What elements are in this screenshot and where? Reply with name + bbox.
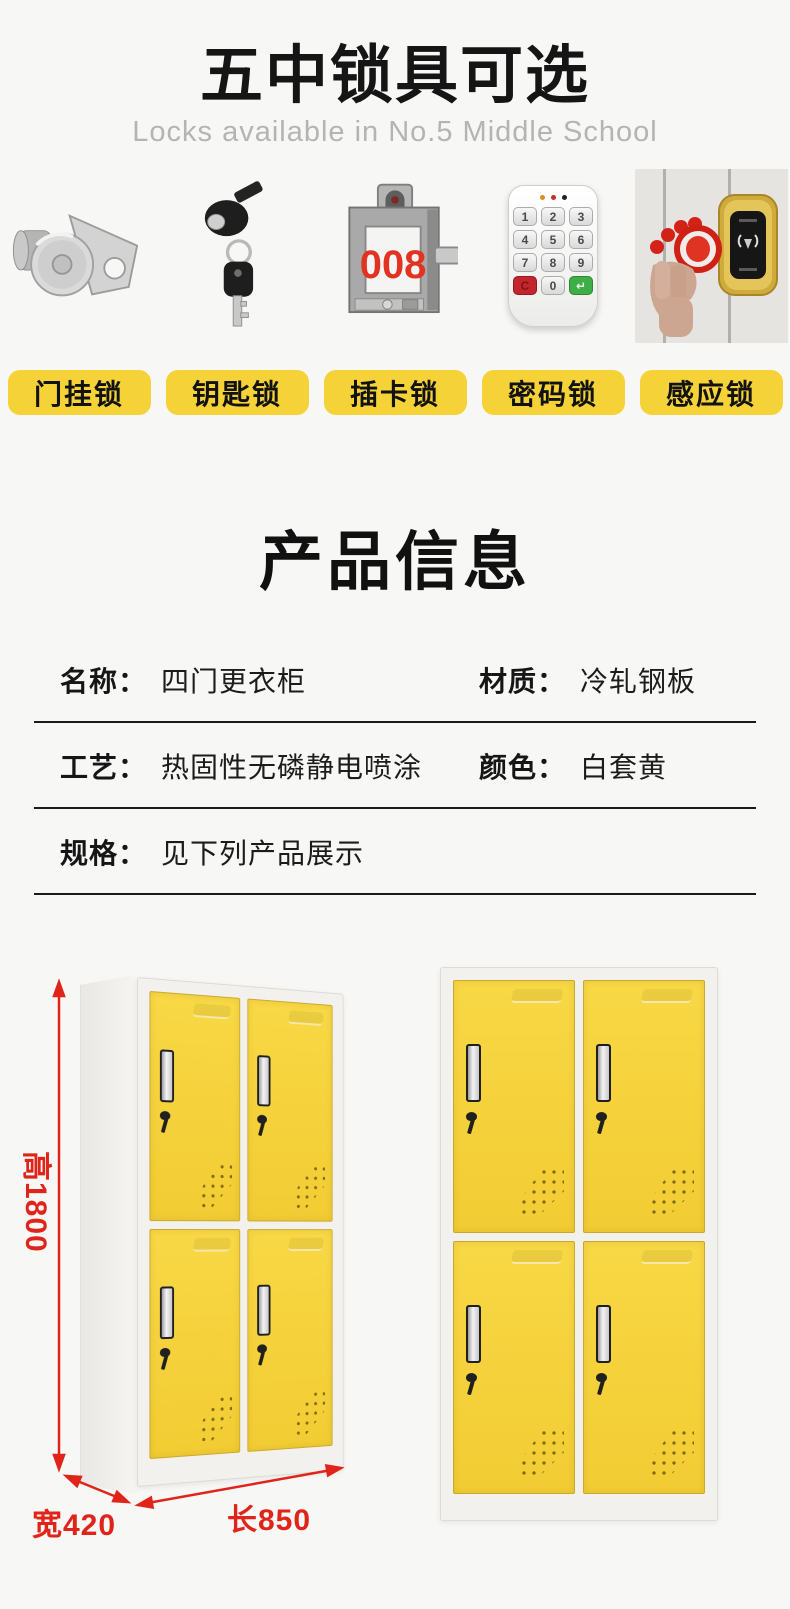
hero-section: 五中锁具可选 Locks available in No.5 Middle Sc… xyxy=(0,0,790,149)
key-8: 8 xyxy=(541,253,565,272)
lock-label-key: 钥匙锁 xyxy=(166,370,309,415)
lock-label-password: 密码锁 xyxy=(482,370,625,415)
spec-color: 颜色： 白套黄 xyxy=(479,746,756,786)
key-1: 1 xyxy=(513,207,537,226)
locker-showcase: 高1800 宽420 长850 xyxy=(0,949,790,1609)
hasp-lock-photo xyxy=(0,165,158,347)
spec-name-value: 四门更衣柜 xyxy=(161,660,306,700)
led-red xyxy=(551,195,556,200)
card-lock-photo: 008 xyxy=(316,165,474,347)
spec-color-label: 颜色： xyxy=(479,746,566,786)
induction-lock-icon xyxy=(635,169,788,343)
spec-row-2: 工艺： 热固性无磷静电喷涂 颜色： 白套黄 xyxy=(34,723,756,809)
lock-images-row: 008 1 2 3 4 5 6 xyxy=(0,165,790,347)
spec-row-3: 规格： 见下列产品展示 xyxy=(34,809,756,895)
spec-color-value: 白套黄 xyxy=(580,746,667,786)
lock-label-hasp: 门挂锁 xyxy=(8,370,151,415)
spec-craft-label: 工艺： xyxy=(60,746,147,786)
spec-material: 材质： 冷轧钢板 xyxy=(479,660,756,700)
spec-size: 规格： 见下列产品展示 xyxy=(34,832,479,872)
spec-craft-value: 热固性无磷静电喷涂 xyxy=(161,746,422,786)
spec-name: 名称： 四门更衣柜 xyxy=(34,660,479,700)
dimension-length-label: 长850 xyxy=(227,1495,311,1539)
lock-label-card: 插卡锁 xyxy=(324,370,467,415)
page-title: 五中锁具可选 xyxy=(0,40,790,112)
spec-table: 名称： 四门更衣柜 材质： 冷轧钢板 工艺： 热固性无磷静电喷涂 颜色： 白套黄 xyxy=(34,637,756,895)
product-info-section: 产品信息 名称： 四门更衣柜 材质： 冷轧钢板 工艺： 热固性无磷静电喷涂 颜色… xyxy=(0,511,790,895)
key-0: 0 xyxy=(541,276,565,295)
page-subtitle: Locks available in No.5 Middle School xyxy=(0,116,790,149)
keypad-lock-photo: 1 2 3 4 5 6 7 8 9 C 0 ↵ xyxy=(474,165,632,347)
key-2: 2 xyxy=(541,207,565,226)
keypad-keys: 1 2 3 4 5 6 7 8 9 C 0 ↵ xyxy=(509,207,597,295)
led-black xyxy=(562,195,567,200)
keypad-lock-icon: 1 2 3 4 5 6 7 8 9 C 0 ↵ xyxy=(508,185,598,327)
spec-material-value: 冷轧钢板 xyxy=(580,660,696,700)
spec-size-value: 见下列产品展示 xyxy=(161,832,364,872)
spec-size-label: 规格： xyxy=(60,832,147,872)
keypad-leds xyxy=(509,186,597,200)
lock-label-induction: 感应锁 xyxy=(640,370,783,415)
product-info-title: 产品信息 xyxy=(0,511,790,603)
dimension-width-label: 宽420 xyxy=(32,1500,116,1544)
dimension-arrows xyxy=(0,949,790,1609)
key-7: 7 xyxy=(513,253,537,272)
spec-name-label: 名称： xyxy=(60,660,147,700)
key-3: 3 xyxy=(569,207,593,226)
key-lock-photo xyxy=(158,165,316,347)
key-clear: C xyxy=(513,276,537,295)
key-6: 6 xyxy=(569,230,593,249)
spec-material-label: 材质： xyxy=(479,660,566,700)
induction-lock-photo xyxy=(632,165,790,347)
key-5: 5 xyxy=(541,230,565,249)
key-9: 9 xyxy=(569,253,593,272)
spec-row-1: 名称： 四门更衣柜 材质： 冷轧钢板 xyxy=(34,637,756,723)
spec-craft: 工艺： 热固性无磷静电喷涂 xyxy=(34,746,479,786)
key-enter: ↵ xyxy=(569,276,593,295)
product-detail-page: 五中锁具可选 Locks available in No.5 Middle Sc… xyxy=(0,0,790,1609)
lock-labels-row: 门挂锁 钥匙锁 插卡锁 密码锁 感应锁 xyxy=(0,370,790,415)
led-amber xyxy=(540,195,545,200)
card-lock-icon: 008 xyxy=(332,179,458,333)
card-lock-number: 008 xyxy=(360,243,427,287)
hasp-lock-icon xyxy=(4,195,154,317)
key-4: 4 xyxy=(513,230,537,249)
dimension-height-label: 高1800 xyxy=(17,1151,61,1249)
key-lock-icon xyxy=(184,180,290,332)
